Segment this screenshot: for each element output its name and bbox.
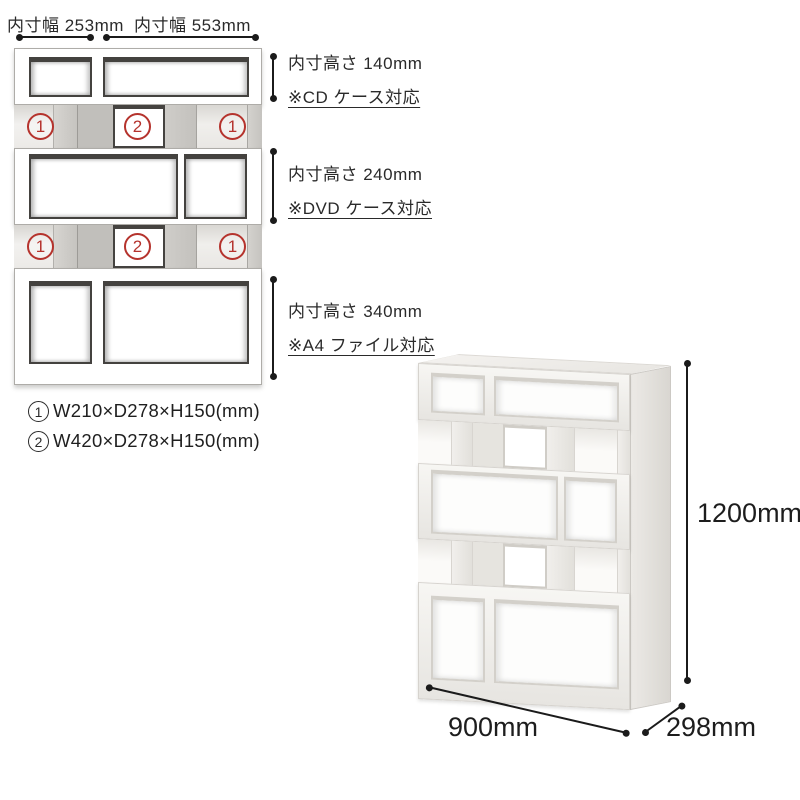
spacer-gap <box>575 548 618 593</box>
spacer-panel <box>473 542 503 587</box>
inner-width-253-label: 内寸幅 253mm <box>7 11 124 36</box>
tier3-board <box>14 268 262 385</box>
tier1-opening-right <box>103 57 249 97</box>
spacer-post <box>247 105 262 148</box>
spacer-panel <box>78 105 113 148</box>
spacer-window <box>503 424 548 469</box>
spacer-post <box>451 541 472 585</box>
shelf-side-face <box>630 366 671 710</box>
legend-item-2: 2 W420×D278×H150(mm) <box>28 430 260 452</box>
product-dimension-sheet: { "colors": { "accent_red": "#b5332d", "… <box>0 0 800 800</box>
marker-circle-2: 2 <box>124 113 151 140</box>
spacer-post <box>165 105 197 148</box>
spacer-post <box>617 430 630 474</box>
tier2-opening-right <box>184 154 246 218</box>
height-dim-line-240 <box>272 150 274 222</box>
width-dim-line-253 <box>18 36 92 38</box>
spacer-panel <box>473 423 503 468</box>
photo-tier1-opening-left <box>431 373 485 415</box>
legend-text-1: W210×D278×H150(mm) <box>53 400 260 422</box>
marker-circle-1: 1 <box>27 113 54 140</box>
marker-circle-1: 1 <box>27 233 54 260</box>
tier1-board <box>14 48 262 105</box>
inner-height-140-label: 内寸高さ 140mm <box>288 49 422 74</box>
photo-tier2-opening-left <box>431 470 558 541</box>
shelf-front-elevation: 1 2 1 1 2 1 <box>14 48 262 385</box>
tier2-board <box>14 148 262 225</box>
photo-tier3-opening-right <box>494 599 619 689</box>
spacer-post <box>53 105 78 148</box>
tier3-opening-right <box>103 281 249 365</box>
inner-height-240-label: 内寸高さ 240mm <box>288 160 432 185</box>
legend-item-1: 1 W210×D278×H150(mm) <box>28 400 260 422</box>
height-dim-line-340 <box>272 278 274 378</box>
photo-tier3-opening-left <box>431 596 485 682</box>
spacer-post <box>53 225 78 268</box>
spacer-gap <box>418 420 451 465</box>
spacer-post <box>617 550 630 594</box>
overall-height-dim-line <box>686 362 688 682</box>
height-dim-line-140 <box>272 55 274 100</box>
inner-width-553-label: 内寸幅 553mm <box>134 11 251 36</box>
spacer-panel <box>78 225 113 268</box>
spacer-post <box>451 422 472 466</box>
photo-tier2-board <box>418 463 630 551</box>
legend-circle-1: 1 <box>28 401 49 422</box>
dvd-case-note: ※DVD ケース対応 <box>288 194 432 219</box>
marker-circle-2: 2 <box>124 233 151 260</box>
spacer-gap <box>575 428 618 473</box>
width-dim-line-553 <box>105 36 257 38</box>
inner-height-340-label: 内寸高さ 340mm <box>288 297 435 322</box>
legend-circle-2: 2 <box>28 431 49 452</box>
a4-file-note: ※A4 ファイル対応 <box>288 331 435 356</box>
inner-height-340-group: 内寸高さ 340mm ※A4 ファイル対応 <box>288 297 435 356</box>
shelf-product-photo <box>418 352 678 726</box>
tier2-opening-left <box>29 154 178 218</box>
photo-tier1-opening-right <box>494 376 619 422</box>
spacer-window <box>503 544 548 589</box>
spacer-post <box>547 427 574 471</box>
overall-height-label: 1200mm <box>697 498 800 529</box>
spacer-gap <box>418 539 451 584</box>
shelf-front-face <box>418 363 630 710</box>
marker-circle-1: 1 <box>219 233 246 260</box>
inner-height-140-group: 内寸高さ 140mm ※CD ケース対応 <box>288 49 422 108</box>
overall-depth-label: 298mm <box>666 712 756 743</box>
overall-width-label: 900mm <box>448 712 538 743</box>
inner-height-240-group: 内寸高さ 240mm ※DVD ケース対応 <box>288 160 432 219</box>
spacer-post <box>247 225 262 268</box>
cd-case-note: ※CD ケース対応 <box>288 83 422 108</box>
tier3-opening-left <box>29 281 92 365</box>
photo-tier2-opening-right <box>564 477 617 544</box>
legend-text-2: W420×D278×H150(mm) <box>53 430 260 452</box>
tier1-opening-left <box>29 57 92 97</box>
marker-circle-1: 1 <box>219 113 246 140</box>
spacer-post <box>547 546 574 590</box>
spacer-post <box>165 225 197 268</box>
